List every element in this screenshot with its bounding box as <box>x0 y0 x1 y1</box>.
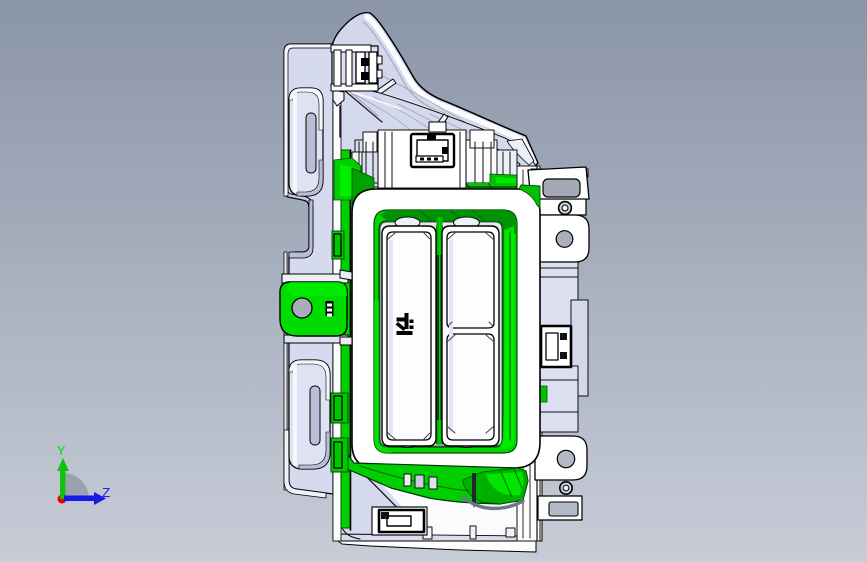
svg-text:Y: Y <box>57 444 66 460</box>
svg-text:Z: Z <box>102 486 110 502</box>
